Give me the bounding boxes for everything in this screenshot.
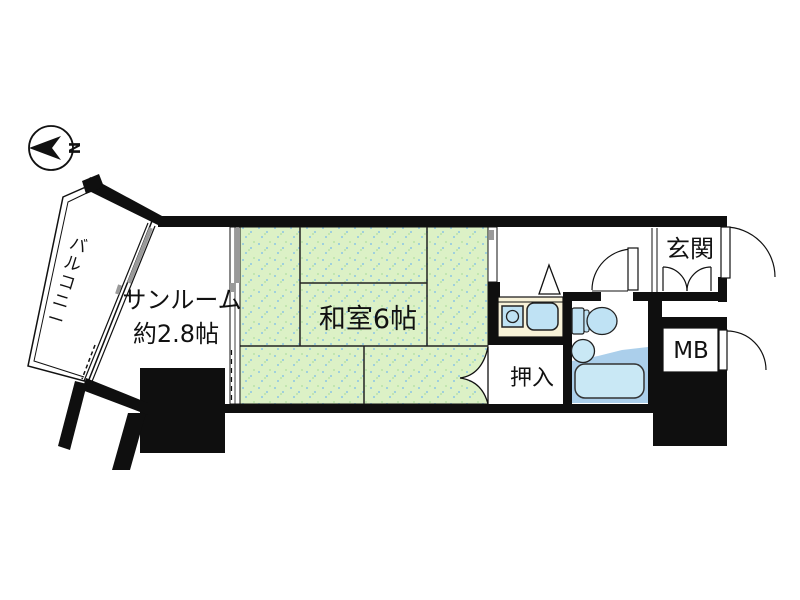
sunroom-size-label: 約2.8帖 <box>133 320 219 348</box>
stove <box>502 306 523 327</box>
sunroom-track-grey-top <box>235 228 240 283</box>
entrance-door-leaf <box>721 227 730 278</box>
toilet-bowl <box>587 308 617 335</box>
washbasin <box>572 340 595 363</box>
wall-balcony-lower <box>58 381 87 450</box>
wall-above-mb <box>663 317 727 328</box>
entrance-label: 玄関 <box>666 235 714 263</box>
entrance-door-arc <box>725 227 775 277</box>
japanese-room-label: 和室6帖 <box>319 304 417 335</box>
wall-top <box>158 216 727 227</box>
floor-plan-svg: N バルコニー サンルーム 約2.8帖 和室6帖 押入 玄関 MB <box>0 0 800 600</box>
mb-door-arc <box>727 331 766 370</box>
kitchen-sink <box>527 303 558 330</box>
wall-bath-left <box>563 292 572 412</box>
meter-box-label: MB <box>673 338 709 364</box>
mb-door-leaf <box>719 330 727 370</box>
wall-bath-top-right <box>633 292 727 301</box>
sunroom-label: サンルーム <box>122 286 241 314</box>
wall-bottom <box>222 404 727 413</box>
washroom-door-leaf <box>628 248 638 290</box>
bathtub <box>575 364 644 398</box>
wall-right-1 <box>718 277 727 302</box>
block-bottom-left <box>140 368 225 453</box>
toilet-tank <box>572 308 584 334</box>
compass-north-label: N <box>65 142 83 155</box>
genkan-porch <box>662 301 718 317</box>
wall-right-2 <box>718 318 727 330</box>
closet-label: 押入 <box>510 366 554 391</box>
window-sash-grey-2 <box>117 285 120 294</box>
block-bottom-right <box>653 372 727 446</box>
wall-bath-top-left <box>563 292 601 301</box>
floor-plan: N バルコニー サンルーム 約2.8帖 和室6帖 押入 玄関 MB <box>0 0 800 600</box>
hall-track-grey <box>489 230 494 240</box>
wall-closet-top <box>488 337 572 345</box>
